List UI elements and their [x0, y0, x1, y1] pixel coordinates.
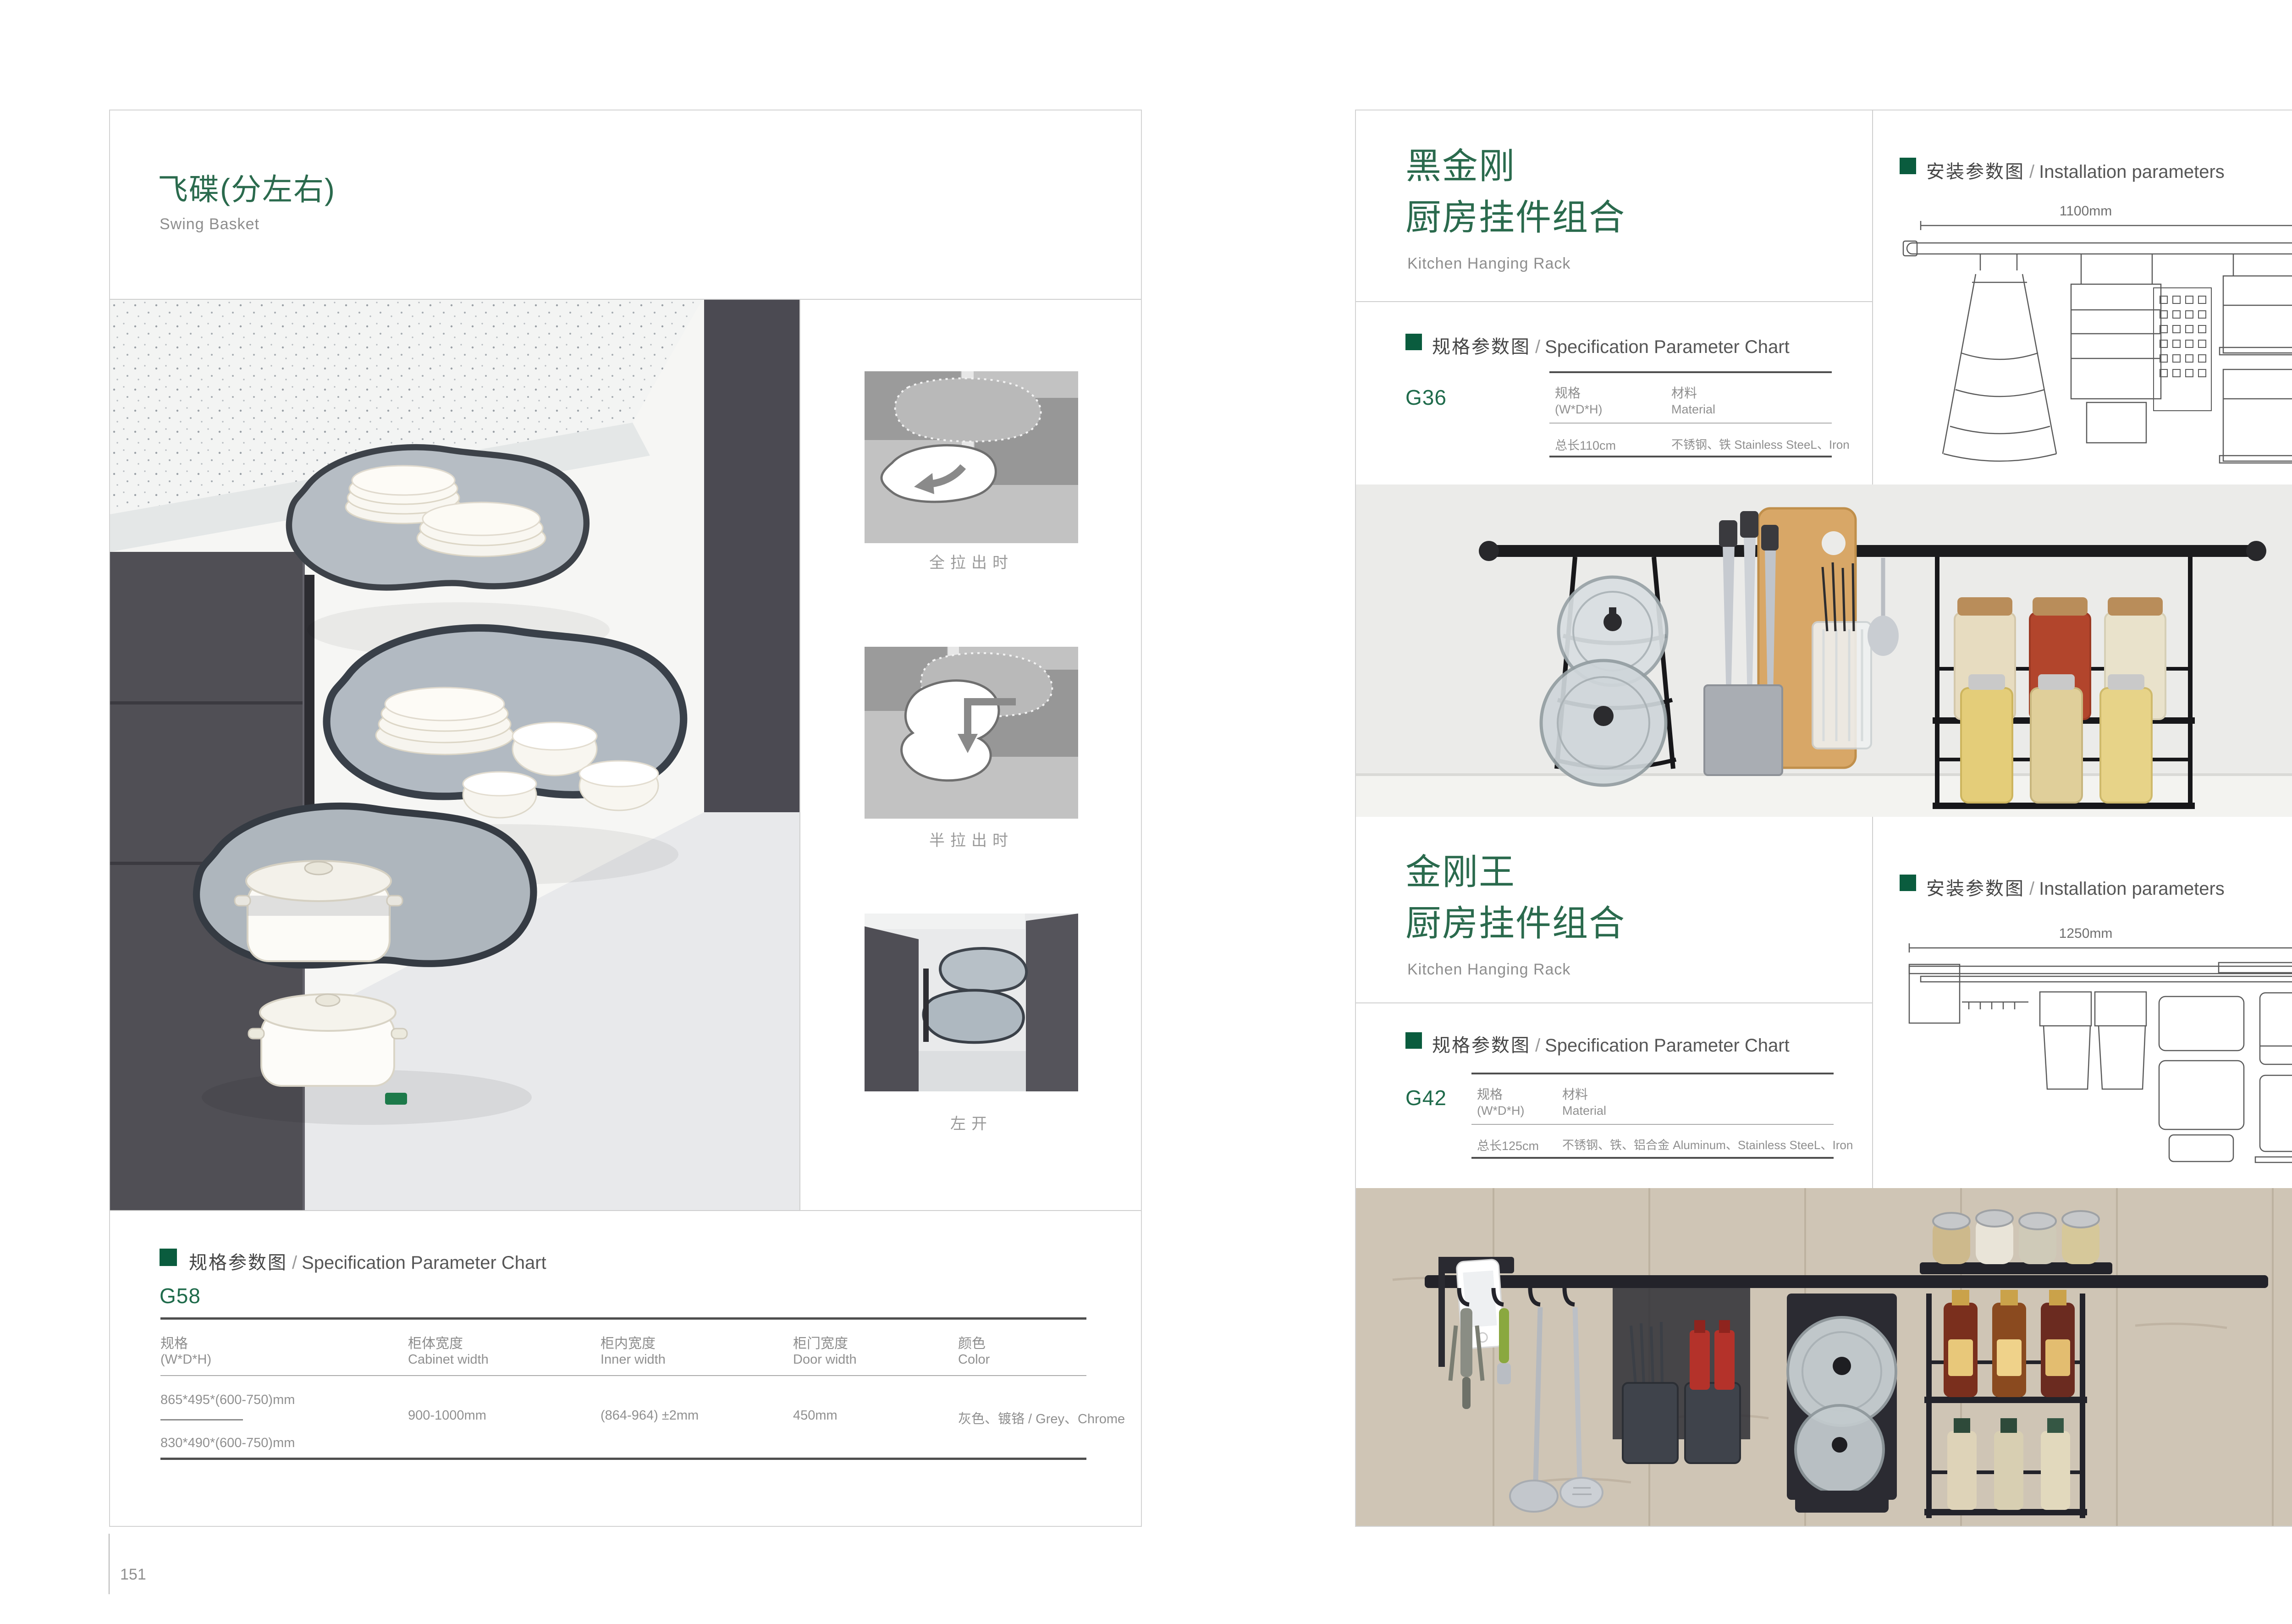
left-divider-top — [110, 299, 1141, 300]
section2-install-heading-en: Installation parameters — [2039, 879, 2225, 899]
left-spec-heading-cn: 规格参数图 — [189, 1253, 287, 1273]
right-cabinet-panel — [704, 300, 799, 814]
left-spec-heading-en: Specification Parameter Chart — [302, 1253, 546, 1273]
g42-col-mat-en: Material — [1562, 1104, 1606, 1118]
g36-table-rule-mid — [1549, 423, 1832, 424]
section2-model-code: G42 — [1405, 1085, 1447, 1110]
section2-install-heading: 安装参数图/Installation parameters — [1926, 874, 2225, 900]
green-square-icon — [1405, 334, 1422, 350]
peeler — [1497, 1308, 1511, 1384]
green-square-icon — [1405, 1032, 1422, 1049]
plate-stack — [417, 502, 545, 556]
thumb-half-pull-art — [865, 647, 1078, 819]
catalog-spread: { "left_page": { "number": "151", "title… — [0, 0, 2292, 1624]
right-title-divider-2 — [1356, 1002, 1872, 1003]
right-vertical-divider-bottom — [1872, 817, 1873, 1188]
g36-value-spec: 总长110cm — [1555, 435, 1616, 453]
swing-basket-photo-art — [110, 300, 799, 1210]
col-cabinet-cn: 柜体宽度 — [408, 1332, 463, 1352]
section1-install-heading-cn: 安装参数图 — [1926, 162, 2025, 182]
spice-jar — [2019, 1213, 2056, 1264]
left-divider-vertical — [799, 299, 800, 1211]
g36-col-spec-cn: 规格 — [1555, 383, 1581, 402]
left-table-rule-bottom — [160, 1458, 1086, 1460]
cutlery-cups — [1613, 1288, 1750, 1463]
section1-install-heading: 安装参数图/Installation parameters — [1926, 157, 2225, 183]
pasta-bottle — [1961, 674, 2012, 803]
g36-product-photo-art — [1356, 484, 2292, 817]
col-inner-en: Inner width — [601, 1352, 666, 1367]
col-door-cn: 柜门宽度 — [793, 1332, 848, 1352]
g36-table-rule-bottom — [1549, 456, 1832, 457]
section2-spec-heading-cn: 规格参数图 — [1432, 1035, 1531, 1056]
spice-bottles — [1947, 1418, 2070, 1510]
pasta-bottle — [2031, 674, 2082, 803]
row-size-divider — [160, 1419, 243, 1420]
left-page-subtitle: Swing Basket — [160, 215, 259, 233]
g42-col-mat-cn: 材料 — [1562, 1085, 1588, 1103]
g36-product-photo — [1356, 484, 2292, 817]
right-vertical-divider-top — [1872, 110, 1873, 484]
row-size-a: 865*495*(600-750)mm — [160, 1393, 295, 1408]
green-square-icon — [160, 1249, 177, 1266]
section1-install-heading-en: Installation parameters — [2039, 162, 2225, 182]
left-spec-heading: 规格参数图/Specification Parameter Chart — [189, 1248, 546, 1274]
green-square-icon — [1900, 158, 1916, 174]
g42-table-rule-bottom — [1471, 1157, 1834, 1159]
g36-col-mat-cn: 材料 — [1671, 383, 1697, 402]
col-color-cn: 颜色 — [958, 1332, 986, 1352]
section1-title-line1: 黑金刚 — [1405, 138, 1515, 189]
thumb-full-pull-caption: 全拉出时 — [865, 550, 1078, 573]
swing-basket-photo — [110, 300, 799, 1210]
thumb-full-pull-art — [865, 371, 1078, 543]
left-table-rule-mid — [160, 1375, 1086, 1376]
col-spec-en: (W*D*H) — [160, 1352, 211, 1367]
col-color-en: Color — [958, 1352, 990, 1367]
col-cabinet-en: Cabinet width — [408, 1352, 489, 1367]
thumb-half-pull — [865, 647, 1078, 819]
left-model-code: G58 — [160, 1283, 201, 1308]
left-divider-bottom — [110, 1210, 1141, 1211]
left-spec-heading-sep: / — [287, 1253, 302, 1273]
row-cabinet-width: 900-1000mm — [408, 1408, 486, 1423]
drawing-cutlery-cups — [2040, 992, 2146, 1089]
left-page-title: 飞碟(分左右) — [158, 165, 336, 209]
g36-install-drawing — [1902, 215, 2292, 481]
col-door-en: Door width — [793, 1352, 857, 1367]
casserole-pot — [248, 994, 407, 1086]
thumb-half-pull-caption: 半拉出时 — [865, 828, 1078, 850]
section2-spec-heading-sep: / — [1531, 1035, 1545, 1056]
g36-col-spec-en: (W*D*H) — [1555, 402, 1602, 417]
g42-value-material: 不锈钢、铁、铝合金 Aluminum、Stainless SteeL、Iron — [1562, 1136, 1853, 1153]
g42-product-photo — [1356, 1188, 2292, 1526]
section2-title-line2: 厨房挂件组合 — [1405, 895, 1625, 946]
g36-col-mat-en: Material — [1671, 402, 1715, 417]
lid-holder — [1787, 1294, 1897, 1513]
g42-product-photo-art — [1356, 1188, 2292, 1526]
g36-install-drawing-art — [1902, 215, 2292, 481]
hanging-rail — [1485, 545, 2260, 557]
thumb-left-open — [865, 914, 1078, 1091]
g42-value-spec: 总长125cm — [1477, 1136, 1539, 1154]
g42-col-spec-cn: 规格 — [1477, 1085, 1503, 1103]
left-table-rule-top — [160, 1317, 1086, 1320]
spice-jar — [2062, 1211, 2099, 1264]
cabinet-seam — [110, 701, 304, 705]
green-square-icon — [1900, 875, 1916, 891]
drawing-two-tier-rack — [2220, 254, 2292, 463]
g42-table-rule-mid — [1471, 1124, 1834, 1125]
col-spec-cn: 规格 — [160, 1332, 188, 1352]
spice-jar — [1933, 1213, 1970, 1264]
g36-table-rule-top — [1549, 371, 1832, 373]
section2-spec-heading: 规格参数图/Specification Parameter Chart — [1432, 1030, 1790, 1057]
drawing-rack-side — [2255, 993, 2292, 1162]
thumb-left-open-art — [865, 914, 1078, 1091]
section1-spec-heading: 规格参数图/Specification Parameter Chart — [1432, 332, 1790, 358]
row-inner-width: (864-964) ±2mm — [601, 1408, 699, 1423]
thumb-full-pull — [865, 371, 1078, 543]
hanging-rail — [1425, 1275, 2268, 1288]
section1-spec-heading-sep: / — [1531, 337, 1545, 357]
left-page-number: 151 — [120, 1566, 146, 1584]
section2-install-heading-sep: / — [2025, 879, 2039, 899]
g42-install-drawing-art — [1902, 938, 2292, 1176]
row-door-width: 450mm — [793, 1408, 837, 1423]
section1-spec-heading-en: Specification Parameter Chart — [1545, 337, 1790, 357]
left-footer-line — [109, 1534, 110, 1594]
bowl — [579, 761, 658, 810]
drawing-lid-rack — [1943, 254, 2056, 461]
brand-chip — [385, 1093, 407, 1105]
section2-install-heading-cn: 安装参数图 — [1926, 879, 2025, 899]
section1-subtitle: Kitchen Hanging Rack — [1407, 255, 1570, 273]
pasta-bottle — [2100, 674, 2152, 803]
right-title-divider-1 — [1356, 301, 1872, 302]
section2-spec-heading-en: Specification Parameter Chart — [1545, 1035, 1790, 1056]
soup-pot — [235, 861, 402, 961]
section1-model-code: G36 — [1405, 385, 1447, 410]
col-inner-cn: 柜内宽度 — [601, 1332, 656, 1352]
section1-install-heading-sep: / — [2025, 162, 2039, 182]
section2-title-line1: 金刚王 — [1405, 843, 1515, 895]
row-color: 灰色、镀铬 / Grey、Chrome — [958, 1408, 1125, 1427]
g42-table-rule-top — [1471, 1073, 1834, 1074]
row-size-b: 830*490*(600-750)mm — [160, 1436, 295, 1451]
drawing-lid-holder-side — [2159, 996, 2244, 1162]
g42-col-spec-en: (W*D*H) — [1477, 1104, 1524, 1118]
thumb-left-open-caption: 左开 — [865, 1111, 1078, 1134]
swing-tray-upper — [289, 447, 586, 588]
g36-value-material: 不锈钢、铁 Stainless SteeL、Iron — [1671, 435, 1850, 452]
spice-jar — [1976, 1210, 2013, 1264]
bowl — [463, 772, 536, 818]
plate-stack — [376, 688, 513, 754]
oil-bottles — [1944, 1290, 2075, 1397]
section2-subtitle: Kitchen Hanging Rack — [1407, 961, 1570, 979]
drawing-hook-panel — [2071, 254, 2161, 443]
g42-install-drawing — [1902, 938, 2292, 1176]
section1-title-line2: 厨房挂件组合 — [1405, 189, 1625, 240]
knives — [1719, 511, 1779, 700]
section1-spec-heading-cn: 规格参数图 — [1432, 337, 1531, 357]
drawing-chopstick-basket — [2154, 288, 2211, 411]
